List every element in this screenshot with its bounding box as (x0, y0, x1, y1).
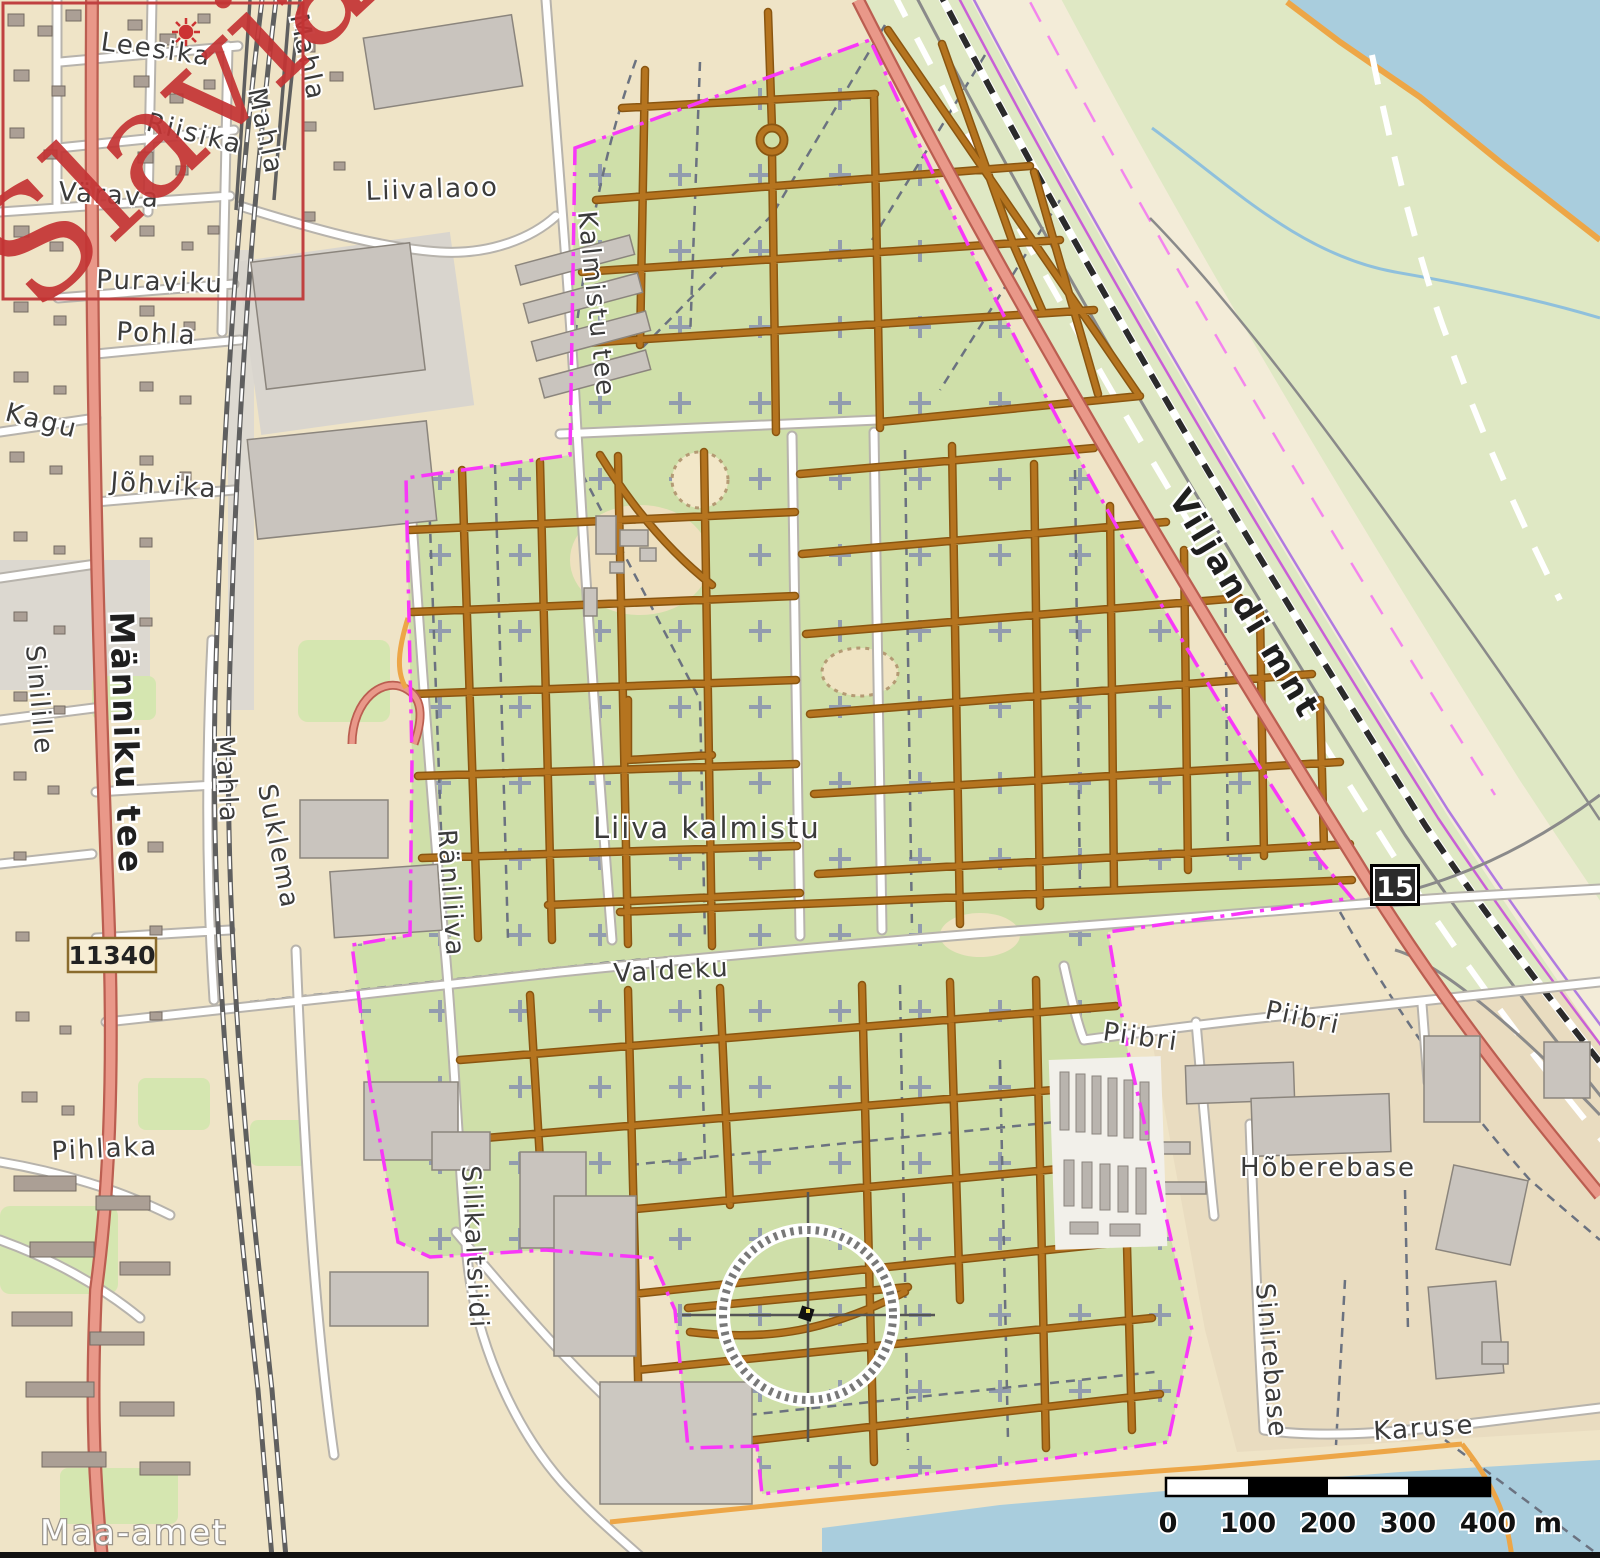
scale-tick-300: 300 (1380, 1508, 1436, 1539)
scale-tick-0: 0 (1159, 1508, 1178, 1539)
street-label-valdeku: Valdeku (613, 953, 731, 989)
road-number-11340: 11340 (69, 941, 156, 970)
scale-tick-200: 200 (1300, 1508, 1356, 1539)
street-label: Mahla (209, 735, 244, 824)
attribution-label: Maa-amet (40, 1513, 227, 1553)
map-bottom-border (0, 1552, 1600, 1558)
scale-unit: m (1534, 1508, 1562, 1539)
map-canvas[interactable]: Leesika Riisika Värava Puraviku Pohla Ka… (0, 0, 1600, 1558)
street-label: Hõberebase (1240, 1153, 1416, 1183)
street-label: Liivalaoo (365, 172, 499, 207)
scale-tick-400: 400 (1460, 1508, 1516, 1539)
street-label: Pihlaka (51, 1131, 159, 1167)
road-number-15: 15 (1376, 872, 1414, 903)
road-badge-15: 15 (1370, 864, 1420, 906)
map-viewport[interactable]: Leesika Riisika Värava Puraviku Pohla Ka… (0, 0, 1600, 1558)
scale-tick-100: 100 (1220, 1508, 1276, 1539)
street-label: Pohla (116, 317, 198, 351)
road-badge-11340: 11340 (68, 938, 156, 972)
place-label-liiva-kalmistu: Liiva kalmistu (593, 811, 821, 845)
